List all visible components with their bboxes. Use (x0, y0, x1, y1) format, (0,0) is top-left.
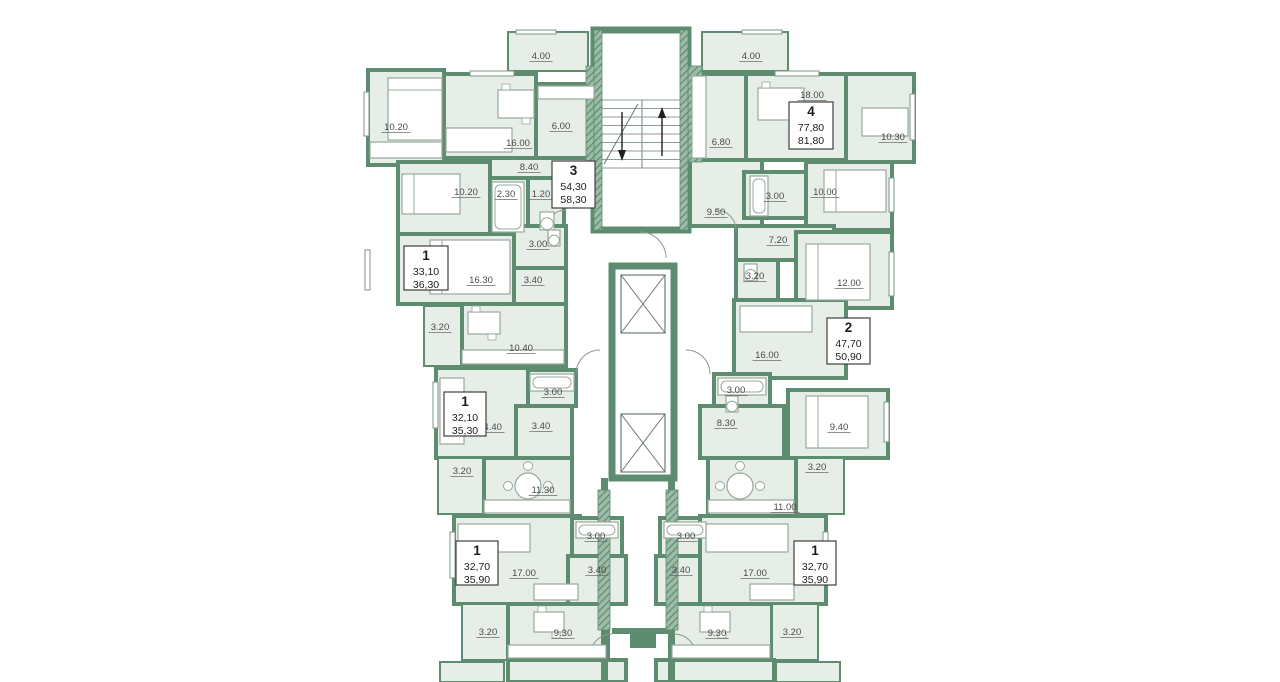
window (365, 250, 370, 290)
apartment-living-area: 32,10 (452, 412, 478, 424)
chair (524, 462, 533, 471)
room-area-label: 16.30 (469, 275, 493, 286)
kitchen-counter-outline (538, 86, 594, 99)
room-partial (776, 662, 840, 682)
apartment-3-box[interactable]: 354,3058,30 (552, 161, 595, 208)
room-area-label: 2.30 (497, 189, 516, 200)
kitchen-counter-outline (484, 500, 570, 513)
window (470, 71, 514, 76)
wardrobe (370, 142, 442, 158)
room-area-label: 4.00 (742, 51, 761, 62)
staircase (594, 30, 688, 230)
apartment-number: 3 (570, 163, 578, 178)
room-area-label: 3.20 (746, 271, 765, 282)
apartment-4-box[interactable]: 477,8081,80 (789, 102, 833, 149)
apartment-number: 1 (422, 248, 430, 263)
room-area-label: 10.30 (881, 132, 905, 143)
sofa (740, 306, 812, 332)
apartment-number: 2 (845, 320, 853, 335)
apartment-living-area: 47,70 (835, 338, 861, 350)
sofa-outline (740, 306, 812, 332)
room-area-label: 18.00 (800, 90, 824, 101)
wardrobe (534, 584, 578, 600)
dining-table-outline (498, 90, 534, 118)
apartment-total-area: 36,30 (413, 279, 439, 291)
kitchen-counter-outline (672, 645, 770, 658)
chair (472, 306, 480, 312)
dining-table (498, 84, 534, 124)
kitchen-table-outline (468, 312, 500, 334)
room-area-label: 9.40 (830, 422, 849, 433)
window (775, 71, 819, 76)
room-area-label: 7.20 (769, 235, 788, 246)
table-top (727, 473, 753, 499)
room-area-label: 6.80 (712, 137, 731, 148)
room-area-label: 3.20 (808, 462, 827, 473)
room-area-label: 3.20 (431, 322, 450, 333)
room-area-label: 9.30 (708, 628, 727, 639)
room-area-label: 17.00 (512, 568, 536, 579)
window (450, 532, 455, 578)
room-area-label: 3.20 (453, 466, 472, 477)
apartment-number: 4 (807, 104, 815, 119)
window (433, 382, 438, 428)
floor-plan-svg: 10.2016.006.008.4010.202.301.204.0016.30… (0, 0, 1280, 682)
bed (402, 174, 460, 214)
apartment-number: 1 (473, 543, 481, 558)
window (364, 92, 369, 136)
room-area-label: 16.00 (506, 138, 530, 149)
room-area-label: 4.00 (532, 51, 551, 62)
room-area-label: 1.20 (532, 189, 551, 200)
room-area-label: 10.40 (509, 343, 533, 354)
apartment-living-area: 32,70 (802, 561, 828, 573)
apartment-total-area: 58,30 (560, 194, 586, 206)
window (742, 30, 782, 34)
apartment-1a-box[interactable]: 133,1036,30 (404, 246, 448, 291)
room-area-label: 16.00 (755, 350, 779, 361)
room-area-label: 3.20 (783, 627, 802, 638)
wardrobe (750, 584, 794, 600)
kitchen-counter (538, 86, 594, 99)
door-arc (640, 232, 666, 258)
elevator-shaft (612, 266, 674, 478)
door-arc (686, 350, 710, 374)
room-area-label: 10.20 (384, 122, 408, 133)
floor-plan-page: 10.2016.006.008.4010.202.301.204.0016.30… (0, 0, 1280, 682)
kitchen-counter-outline (692, 76, 706, 158)
room-area-label: 3.00 (587, 531, 606, 542)
room-area-label: 11.30 (531, 485, 554, 496)
chair (716, 482, 725, 491)
apartment-number: 1 (461, 394, 469, 409)
apartment-total-area: 50,90 (835, 351, 861, 363)
toilet (726, 396, 738, 412)
double-bed-outline (806, 244, 870, 300)
kitchen-counter (484, 500, 570, 513)
apartment-total-area: 35,90 (802, 574, 828, 586)
apartment-number: 1 (811, 543, 819, 558)
room-area-label: 3.20 (479, 627, 498, 638)
double-bed (806, 244, 870, 300)
room-area-label: 9.30 (554, 628, 573, 639)
apartment-living-area: 32,70 (464, 561, 490, 573)
room-area-label: 3.00 (766, 191, 785, 202)
room-partial (440, 662, 504, 682)
door-arc (576, 350, 600, 374)
sofa (706, 524, 788, 552)
room-area-label: 6.00 (552, 121, 571, 132)
window (884, 402, 889, 442)
room-area-label: 3.40 (524, 275, 543, 286)
chair (502, 84, 510, 90)
apartment-living-area: 54,30 (560, 181, 586, 193)
toilet-bowl (541, 218, 554, 230)
chair (488, 334, 496, 340)
wardrobe-outline (370, 142, 442, 158)
apartment-1b-box[interactable]: 132,1035,30 (444, 392, 486, 437)
hatched-wall (598, 490, 610, 630)
room-area-label: 8.40 (520, 162, 539, 173)
kitchen-counter (508, 645, 606, 658)
room-area-label: 9.50 (707, 207, 726, 218)
wall-segment (612, 628, 674, 634)
room-area-label: 3.40 (672, 565, 691, 576)
room-area-label: 8.30 (717, 418, 736, 429)
window (889, 178, 894, 212)
window (910, 94, 915, 140)
window (889, 252, 894, 296)
apartment-total-area: 81,80 (798, 135, 824, 147)
wardrobe-outline (750, 584, 794, 600)
stair-shaft (594, 30, 688, 230)
chair (736, 462, 745, 471)
apartment-total-area: 35,90 (464, 574, 490, 586)
apartment-living-area: 77,80 (798, 122, 824, 134)
chair (538, 606, 546, 612)
chair (756, 482, 765, 491)
toilet-bowl (727, 401, 738, 412)
hatched-wall (680, 30, 688, 230)
chair (522, 118, 530, 124)
apartment-2-box[interactable]: 247,7050,90 (827, 318, 870, 364)
room-area-label: 3.40 (588, 565, 607, 576)
chair (704, 606, 712, 612)
bed-outline (402, 174, 460, 214)
apartment-total-area: 35,30 (452, 425, 478, 437)
room-area-label: 3.00 (727, 385, 746, 396)
apartment-1d-box[interactable]: 132,7035,90 (794, 541, 836, 586)
apartment-living-area: 33,10 (413, 266, 439, 278)
room-area-label: 3.00 (677, 531, 696, 542)
room-area-label: 3.00 (529, 239, 548, 250)
room-area-label: 10.20 (454, 187, 478, 198)
wall-segment (630, 634, 656, 648)
room-hall (700, 406, 784, 458)
room-balcony (424, 306, 462, 366)
room-area-label: 17.00 (743, 568, 767, 579)
room-hall (516, 406, 572, 458)
sofa-outline (706, 524, 788, 552)
room-hall (514, 268, 566, 306)
sofa-outline (446, 128, 512, 152)
kitchen-counter-outline (508, 645, 606, 658)
chair (762, 82, 770, 88)
apartment-1c-box[interactable]: 132,7035,90 (456, 541, 498, 586)
room-area-label: 3.40 (532, 421, 551, 432)
window (516, 30, 556, 34)
toilet (540, 212, 554, 230)
kitchen-counter (692, 76, 706, 158)
room-area-label: 3.00 (544, 387, 563, 398)
toilet-bowl (549, 235, 560, 246)
room-area-label: 12.00 (837, 278, 861, 289)
sofa (446, 128, 512, 152)
room-area-label: 11.00 (773, 502, 796, 513)
hatched-wall (666, 490, 678, 630)
wardrobe-outline (534, 584, 578, 600)
toilet (548, 230, 560, 246)
kitchen-counter (672, 645, 770, 658)
room-partial (508, 660, 626, 682)
chair (504, 482, 513, 491)
room-area-label: 10.00 (813, 187, 837, 198)
